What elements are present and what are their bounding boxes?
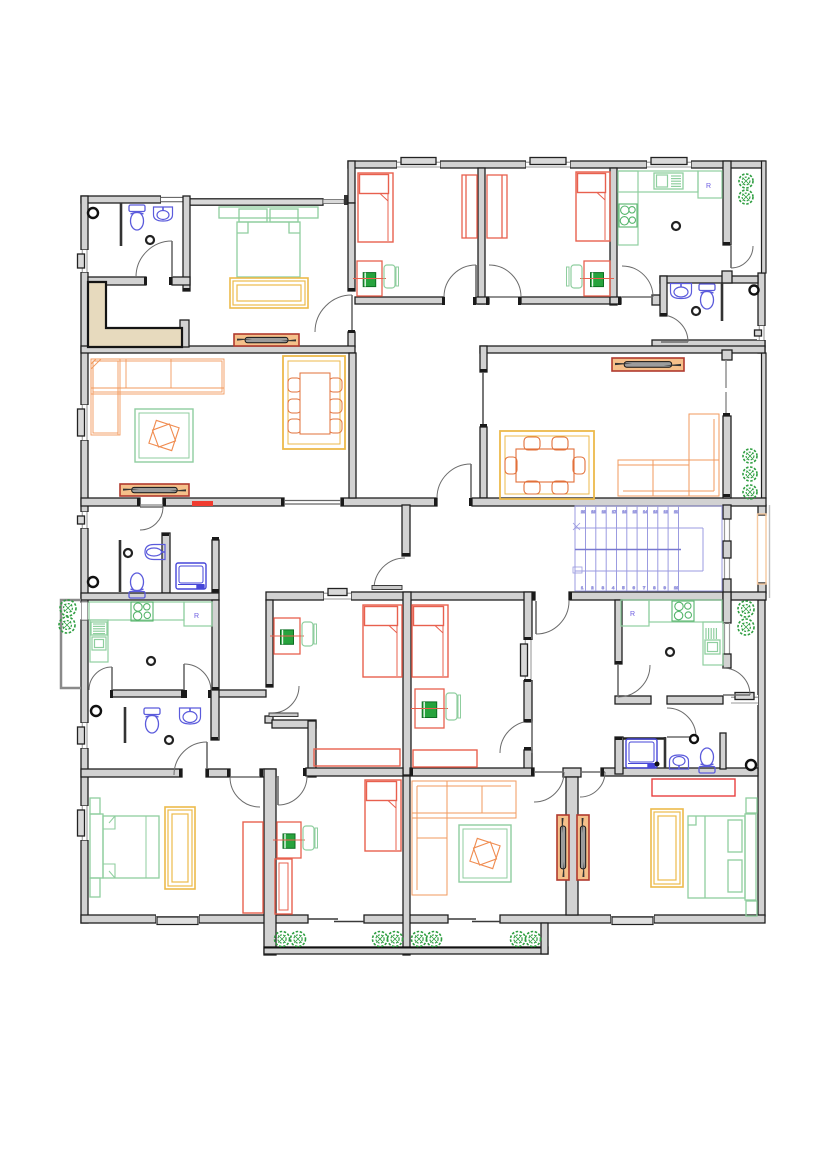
svg-text:R: R <box>194 613 199 620</box>
svg-text:13: 13 <box>653 509 658 514</box>
svg-text:20: 20 <box>581 509 586 514</box>
svg-text:12: 12 <box>664 509 669 514</box>
svg-text:18: 18 <box>602 509 607 514</box>
svg-text:19: 19 <box>591 509 596 514</box>
svg-text:17: 17 <box>612 509 617 514</box>
svg-text:16: 16 <box>622 509 627 514</box>
svg-text:R: R <box>706 183 711 190</box>
svg-text:14: 14 <box>643 509 648 514</box>
svg-text:15: 15 <box>633 509 638 514</box>
svg-text:R: R <box>630 611 635 618</box>
svg-text:10: 10 <box>674 585 679 590</box>
